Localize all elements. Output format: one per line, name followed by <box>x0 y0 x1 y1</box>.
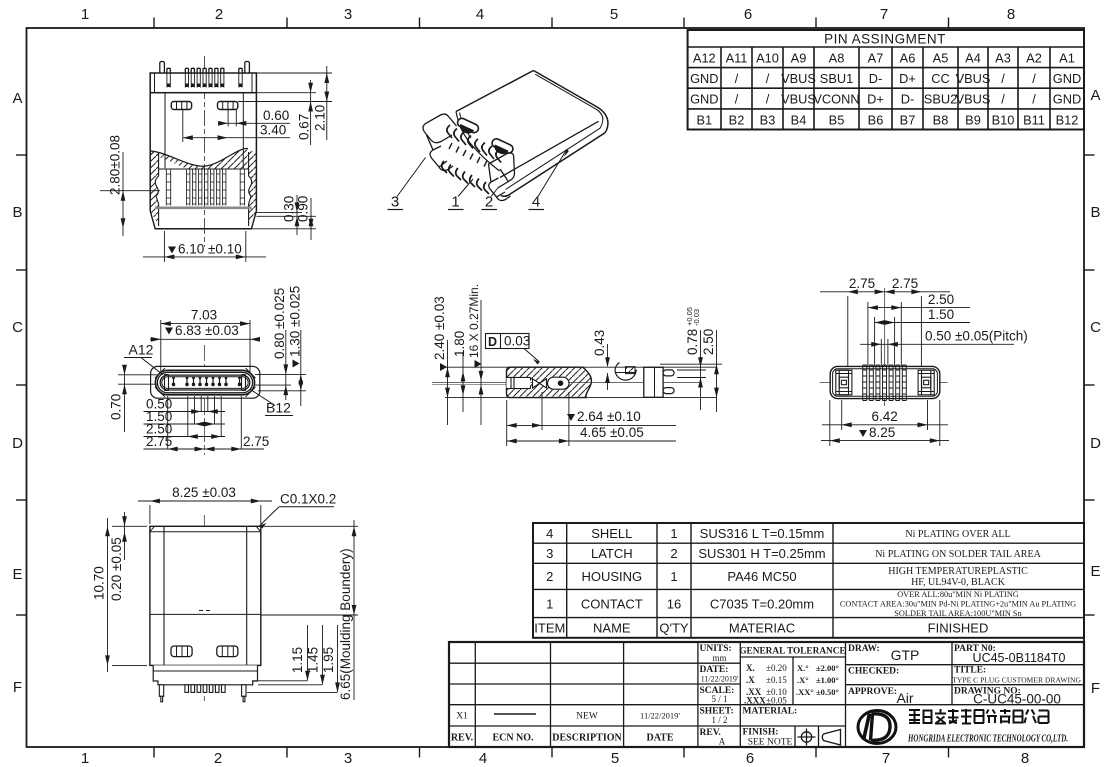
svg-text:SOLDER TAIL AREA:100U"MIN Sn: SOLDER TAIL AREA:100U"MIN Sn <box>894 609 1022 618</box>
svg-text:/: / <box>1001 71 1005 86</box>
svg-text:B2: B2 <box>729 112 745 127</box>
svg-text:VBUS: VBUS <box>781 92 816 107</box>
svg-text:.X: .X <box>746 675 755 685</box>
svg-text:10.70: 10.70 <box>92 566 107 600</box>
svg-text:TYPE C PLUG CUSTOMER DRAWING: TYPE C PLUG CUSTOMER DRAWING <box>952 676 1081 685</box>
svg-text:.XXX: .XXX <box>744 696 766 706</box>
svg-text:NAME: NAME <box>593 621 631 636</box>
svg-text:±2.00°: ±2.00° <box>816 663 839 673</box>
svg-text:D+: D+ <box>867 92 884 107</box>
svg-text:B4: B4 <box>791 112 807 127</box>
svg-text:0.03: 0.03 <box>504 334 530 349</box>
svg-text:1.95: 1.95 <box>321 647 336 673</box>
svg-text:A2: A2 <box>1026 50 1042 65</box>
svg-text:1.30 ±0.025: 1.30 ±0.025 <box>288 286 303 357</box>
svg-text:4: 4 <box>532 194 540 211</box>
svg-text:±0.05: ±0.05 <box>766 696 787 706</box>
svg-text:/: / <box>1032 71 1036 86</box>
svg-text:REV.: REV. <box>700 728 721 738</box>
svg-text:7: 7 <box>882 750 890 767</box>
svg-text:/: / <box>735 92 739 107</box>
svg-text:A12: A12 <box>129 342 154 358</box>
svg-text:DATE: DATE <box>646 733 673 744</box>
svg-text:1.45: 1.45 <box>306 647 321 673</box>
svg-text:NEW: NEW <box>576 712 598 722</box>
svg-text:4.65 ±0.05: 4.65 ±0.05 <box>580 425 644 440</box>
svg-text:A5: A5 <box>933 50 949 65</box>
svg-text:SBU1: SBU1 <box>820 71 853 86</box>
svg-text:GTP: GTP <box>891 647 920 663</box>
svg-text:REV.: REV. <box>451 733 474 744</box>
svg-text:A3: A3 <box>995 50 1011 65</box>
svg-text:5 / 1: 5 / 1 <box>711 694 727 704</box>
svg-text:1.50: 1.50 <box>928 307 954 322</box>
svg-text:1: 1 <box>670 526 677 541</box>
svg-text:A: A <box>719 737 726 747</box>
svg-text:2.75: 2.75 <box>146 434 172 449</box>
svg-text:SHELL: SHELL <box>591 526 632 541</box>
svg-text:C0.1X0.2: C0.1X0.2 <box>280 492 336 507</box>
svg-text:F: F <box>13 679 22 696</box>
svg-text:A: A <box>12 90 22 107</box>
svg-text:A: A <box>1090 87 1100 104</box>
svg-text:VBUS: VBUS <box>781 71 816 86</box>
svg-text:MATERIAC: MATERIAC <box>729 621 795 636</box>
svg-text:7.03: 7.03 <box>191 308 217 323</box>
svg-text:B5: B5 <box>829 112 845 127</box>
svg-text:GENERAL TOLERANCE: GENERAL TOLERANCE <box>739 647 845 657</box>
svg-text:A4: A4 <box>965 50 981 65</box>
svg-text:D+: D+ <box>899 71 916 86</box>
svg-text:A11: A11 <box>726 50 748 65</box>
svg-text:6: 6 <box>746 750 754 767</box>
svg-text:2.64 ±0.10: 2.64 ±0.10 <box>577 409 641 424</box>
svg-text:4: 4 <box>546 526 553 541</box>
svg-text:APPROVE:: APPROVE: <box>848 687 897 697</box>
svg-text:2.75: 2.75 <box>892 276 918 291</box>
svg-text:6.42: 6.42 <box>871 409 897 424</box>
svg-text:DRAW:: DRAW: <box>848 644 880 654</box>
svg-text:UC45-0B1184T0: UC45-0B1184T0 <box>973 651 1066 665</box>
svg-text:7: 7 <box>880 6 888 23</box>
svg-text:2.50: 2.50 <box>928 292 954 307</box>
svg-text:3: 3 <box>391 194 399 211</box>
svg-text:F: F <box>1091 680 1100 697</box>
svg-text:16: 16 <box>667 597 681 612</box>
svg-text:SBU2: SBU2 <box>924 92 957 107</box>
svg-text:DESCRIPTION: DESCRIPTION <box>552 733 622 744</box>
svg-text:DATE:: DATE: <box>700 665 729 675</box>
svg-text:11/22/2019': 11/22/2019' <box>640 711 680 721</box>
svg-text:2.75: 2.75 <box>243 434 269 449</box>
svg-text:/: / <box>766 92 770 107</box>
svg-text:PA46 MC50: PA46 MC50 <box>727 569 796 584</box>
svg-text:B7: B7 <box>900 112 916 127</box>
svg-text:1.80: 1.80 <box>452 331 467 357</box>
svg-text:B: B <box>12 204 22 221</box>
svg-text:SEE NOTE: SEE NOTE <box>748 738 793 748</box>
svg-text:.X°: .X° <box>797 675 809 685</box>
svg-text:/: / <box>1001 92 1005 107</box>
svg-text:C: C <box>1090 319 1101 336</box>
svg-text:VBUS: VBUS <box>956 71 991 86</box>
svg-text:8.25: 8.25 <box>869 425 895 440</box>
svg-text:HIGH TEMPERATUREPLASTIC: HIGH TEMPERATUREPLASTIC <box>888 566 1028 577</box>
svg-text:X1: X1 <box>456 712 468 722</box>
svg-text:Ni PLATING OVER ALL: Ni PLATING OVER ALL <box>905 529 1010 540</box>
svg-text:FINISHED: FINISHED <box>928 621 989 636</box>
svg-text:-0.03: -0.03 <box>692 309 701 326</box>
svg-text:2: 2 <box>214 750 222 767</box>
svg-text:C: C <box>12 319 23 336</box>
svg-text:A12: A12 <box>693 50 716 65</box>
svg-text:0.78: 0.78 <box>685 329 700 355</box>
svg-text:VCONN: VCONN <box>813 92 859 107</box>
svg-text:±0.50°: ±0.50° <box>816 687 839 697</box>
svg-text:D: D <box>12 435 23 452</box>
svg-text:B6: B6 <box>868 112 884 127</box>
svg-text:A6: A6 <box>900 50 916 65</box>
svg-text:±1.00°: ±1.00° <box>816 675 839 685</box>
svg-text:1.15: 1.15 <box>290 647 305 673</box>
svg-text:0.80 ±0.025: 0.80 ±0.025 <box>272 288 287 359</box>
svg-text:4: 4 <box>476 6 484 23</box>
svg-text:/: / <box>766 71 770 86</box>
svg-text:4: 4 <box>479 750 487 767</box>
svg-text:5: 5 <box>611 750 619 767</box>
svg-text:X.: X. <box>746 663 755 673</box>
svg-text:16 X 0.27Min.: 16 X 0.27Min. <box>467 284 481 358</box>
svg-text:D: D <box>488 335 497 349</box>
svg-text:B: B <box>1090 204 1100 221</box>
svg-text:OVER ALL:80u"MIN Ni PLATING: OVER ALL:80u"MIN Ni PLATING <box>897 590 1019 599</box>
svg-text:B12: B12 <box>1056 112 1079 127</box>
svg-text:A8: A8 <box>829 50 845 65</box>
svg-text:0.67: 0.67 <box>297 114 312 140</box>
svg-text:GND: GND <box>690 71 718 86</box>
svg-text:A7: A7 <box>868 50 884 65</box>
svg-text:SUS316 L T=0.15mm: SUS316 L T=0.15mm <box>700 526 825 541</box>
svg-text:0.60: 0.60 <box>263 108 289 123</box>
svg-text:D-: D- <box>901 92 915 107</box>
svg-text:2.75: 2.75 <box>849 276 875 291</box>
svg-text:VBUS: VBUS <box>956 92 991 107</box>
svg-text:8: 8 <box>1007 6 1015 23</box>
svg-text:2.50: 2.50 <box>701 329 716 355</box>
svg-text:HONGRIDA ELECTRONIC TECHNOLOGY: HONGRIDA ELECTRONIC TECHNOLOGY CO,LTD. <box>907 734 1068 745</box>
svg-text:MATERIAL:: MATERIAL: <box>743 707 798 717</box>
svg-text:3: 3 <box>344 750 352 767</box>
svg-text:Air: Air <box>896 690 913 706</box>
svg-text:GND: GND <box>1053 71 1081 86</box>
svg-text:±0.20: ±0.20 <box>766 663 787 673</box>
svg-text:CONTACT: CONTACT <box>581 597 643 612</box>
svg-text:TITLE:: TITLE: <box>954 666 986 676</box>
svg-text:mm: mm <box>712 653 726 663</box>
svg-text:ITEM: ITEM <box>534 621 565 636</box>
svg-text:3.40: 3.40 <box>260 123 286 138</box>
svg-text:GND: GND <box>1053 92 1081 107</box>
svg-text:C-UC45-00-00: C-UC45-00-00 <box>973 692 1061 707</box>
svg-text:X.°: X.° <box>797 663 809 673</box>
svg-text:CC: CC <box>931 71 949 86</box>
svg-text:0.30: 0.30 <box>282 196 297 222</box>
svg-text:0.50 ±0.05(Pitch): 0.50 ±0.05(Pitch) <box>925 329 1028 344</box>
svg-text:2.40 ±0.03: 2.40 ±0.03 <box>432 296 447 360</box>
svg-text:ECN NO.: ECN NO. <box>492 733 534 744</box>
svg-text:GND: GND <box>690 92 718 107</box>
svg-text:6.83 ±0.03: 6.83 ±0.03 <box>175 323 239 338</box>
svg-text:6.10 ±0.10: 6.10 ±0.10 <box>178 242 242 257</box>
svg-text:A9: A9 <box>791 50 807 65</box>
svg-text:A1: A1 <box>1059 50 1075 65</box>
svg-text:PIN ASSINGMENT: PIN ASSINGMENT <box>824 32 946 47</box>
svg-text:/: / <box>1032 92 1036 107</box>
svg-text:C7035 T=0.20mm: C7035 T=0.20mm <box>710 597 814 612</box>
svg-text:SUS301 H T=0.25mm: SUS301 H T=0.25mm <box>698 546 825 561</box>
svg-text:D: D <box>1090 435 1101 452</box>
svg-text:B8: B8 <box>933 112 949 127</box>
svg-text:3: 3 <box>546 546 553 561</box>
svg-text:8.25 ±0.03: 8.25 ±0.03 <box>172 485 236 500</box>
svg-text:1: 1 <box>81 750 89 767</box>
svg-text:2.80±0.08: 2.80±0.08 <box>108 135 123 195</box>
svg-text:HF, UL94V-0, BLACK: HF, UL94V-0, BLACK <box>911 577 1006 588</box>
svg-text:8: 8 <box>1021 750 1029 767</box>
svg-text:2: 2 <box>670 546 677 561</box>
svg-text:D-: D- <box>869 71 883 86</box>
svg-text:6: 6 <box>744 6 752 23</box>
svg-text:CHECKED:: CHECKED: <box>848 667 899 677</box>
svg-text:.XX°: .XX° <box>796 687 814 697</box>
svg-text:FINISH:: FINISH: <box>743 728 779 738</box>
svg-text:CONTACT AREA:30u"MIN Pd-Ni PLA: CONTACT AREA:30u"MIN Pd-Ni PLATING+2u"MI… <box>840 599 1076 608</box>
svg-text:LATCH: LATCH <box>591 546 633 561</box>
svg-text:2: 2 <box>485 194 493 211</box>
svg-text:/: / <box>735 71 739 86</box>
svg-text:6.65(Moulding Boundery): 6.65(Moulding Boundery) <box>338 548 353 700</box>
svg-text:1: 1 <box>546 597 553 612</box>
svg-text:B10: B10 <box>992 112 1015 127</box>
svg-text:2: 2 <box>215 6 223 23</box>
svg-text:1 / 2: 1 / 2 <box>711 715 727 725</box>
svg-text:A10: A10 <box>756 50 779 65</box>
svg-text:Q'TY: Q'TY <box>659 621 689 636</box>
svg-text:Ni PLATING ON SOLDER TAIL AREA: Ni PLATING ON SOLDER TAIL AREA <box>875 549 1041 560</box>
svg-text:2: 2 <box>546 569 553 584</box>
svg-text:B9: B9 <box>965 112 981 127</box>
svg-text:3: 3 <box>344 6 352 23</box>
svg-text:E: E <box>1090 563 1100 580</box>
svg-text:E: E <box>12 566 22 583</box>
svg-text:2.10: 2.10 <box>313 105 328 131</box>
svg-text:5: 5 <box>610 6 618 23</box>
svg-text:0.43: 0.43 <box>592 330 607 356</box>
svg-text:B3: B3 <box>760 112 776 127</box>
svg-text:1: 1 <box>81 6 89 23</box>
svg-text:HOUSING: HOUSING <box>581 569 642 584</box>
svg-text:11/22/2019': 11/22/2019' <box>701 675 739 684</box>
svg-text:0.70: 0.70 <box>109 394 124 420</box>
svg-text:0.90: 0.90 <box>296 196 311 222</box>
svg-text:B11: B11 <box>1023 112 1045 127</box>
svg-text:±0.15: ±0.15 <box>766 675 787 685</box>
svg-text:1: 1 <box>451 194 459 211</box>
svg-text:0.20 ±0.05: 0.20 ±0.05 <box>109 537 124 601</box>
svg-text:1: 1 <box>670 569 677 584</box>
svg-text:B1: B1 <box>696 112 712 127</box>
